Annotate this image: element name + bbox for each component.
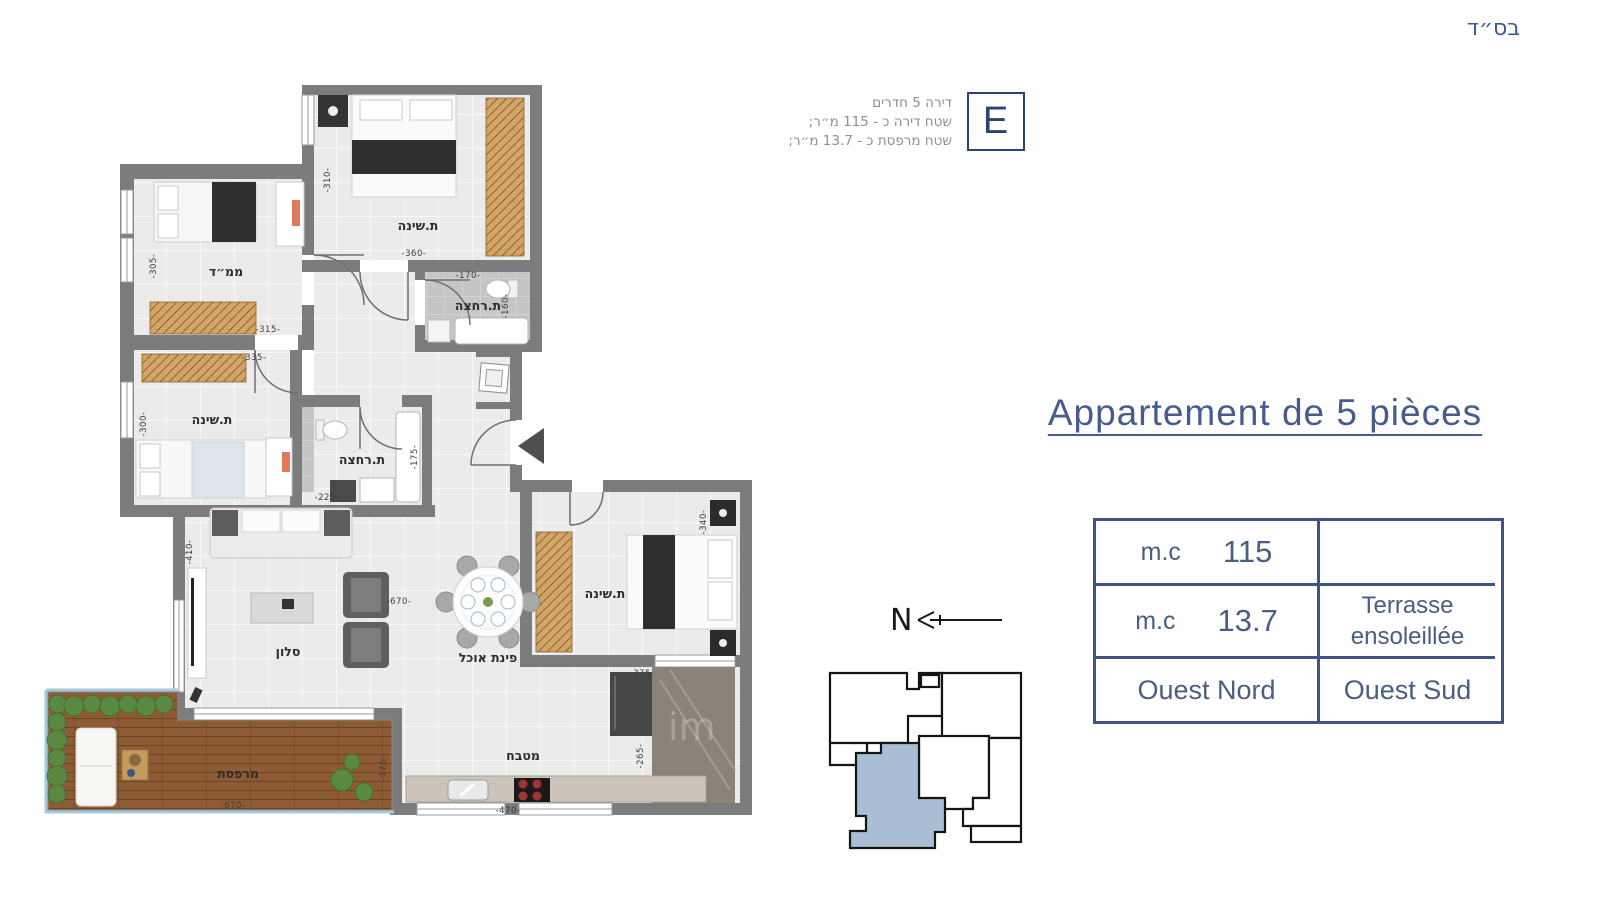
compass: N [868,596,1008,642]
hall-shelf [479,363,509,393]
north-arrow-icon [918,612,1002,628]
dim-670a: -670- [387,597,412,607]
unit-info-line3: שטח מרפסת כ - 13.7 מ״ר; [752,132,952,151]
unit-info: דירה 5 חדרים שטח דירה כ - 115 מ״ר; שטח מ… [752,94,952,151]
cell-area-total: m.c 115 [1096,521,1320,586]
dim-175a: -175- [410,445,420,470]
mamad-furniture [154,182,304,246]
dim-305: -305- [149,254,159,279]
cell-terrace-label: Terrasse ensoleillée [1320,586,1495,659]
terrace-label-line1: Terrasse [1361,590,1453,621]
entrance-marker [518,428,544,464]
label-bath-mid: ת.רחצה [339,452,385,467]
dim-175b: -175- [379,756,389,781]
label-bedroom-mid: ת.שינה [192,412,233,427]
spec-table: m.c 115 m.c 13.7 Terrasse ensoleillée Ou… [1093,518,1504,724]
dim-315: -315- [256,325,281,335]
label-salon: סלון [276,644,301,659]
unit-letter: E [983,100,1009,143]
dim-340: -340- [699,510,709,535]
keyplan-unit-b [942,673,1021,738]
dim-375: -375- [630,669,655,679]
dim-265: -265- [636,744,646,769]
cell-orientation-1: Ouest Nord [1096,659,1320,721]
page-title: Appartement de 5 pièces [1000,392,1530,434]
floor-plan: im ת.שינה ת.רחצה ממ״ד ת.שינה ת.רחצה סלון… [30,80,760,825]
dim-170: -170- [456,271,481,281]
label-dining: פינת אוכל [459,650,518,665]
dim-360: -360- [402,249,427,259]
dim-335: -335- [242,353,267,363]
label-bedroom-top: ת.שינה [398,218,439,233]
area-total-unit: m.c [1141,538,1181,567]
dim-310: -310- [323,168,333,193]
label-terrace: מרפסת [217,766,259,781]
dim-410: -410- [185,540,195,565]
label-bedroom-right: ת.שינה [585,586,626,601]
cell-empty [1320,521,1495,586]
keyplan-unit-d2 [971,826,1021,842]
dim-160: -160- [501,294,511,319]
unit-info-line1: דירה 5 חדרים [752,94,952,113]
compass-n-label: N [890,603,912,638]
unit-info-line2: שטח דירה כ - 115 מ״ר; [752,113,952,132]
label-kitchen: מטבח [506,748,540,763]
area-terrace-unit: m.c [1135,607,1175,636]
terrace-label-line2: ensoleillée [1351,621,1464,652]
label-mamad: ממ״ד [209,264,243,279]
unit-letter-box: E [967,92,1025,151]
terrace-sofa [76,728,116,806]
dim-470: -470- [496,806,521,816]
watermark: im [668,705,716,749]
page: im ת.שינה ת.רחצה ממ״ד ת.שינה ת.רחצה סלון… [0,0,1600,900]
dim-670b: -670- [221,801,246,811]
cell-orientation-2: Ouest Sud [1320,659,1495,721]
label-bath-top: ת.רחצה [455,298,501,313]
keyplan-stair [921,675,939,687]
bsd-text: בס״ד [1467,16,1520,41]
bed-mid [136,438,292,498]
dim-225: -225- [315,493,340,503]
area-terrace-value: 13.7 [1217,603,1277,639]
key-plan [823,646,1028,866]
dim-300: -300- [139,412,149,437]
area-total-value: 115 [1223,534,1272,570]
cell-area-terrace: m.c 13.7 [1096,586,1320,659]
